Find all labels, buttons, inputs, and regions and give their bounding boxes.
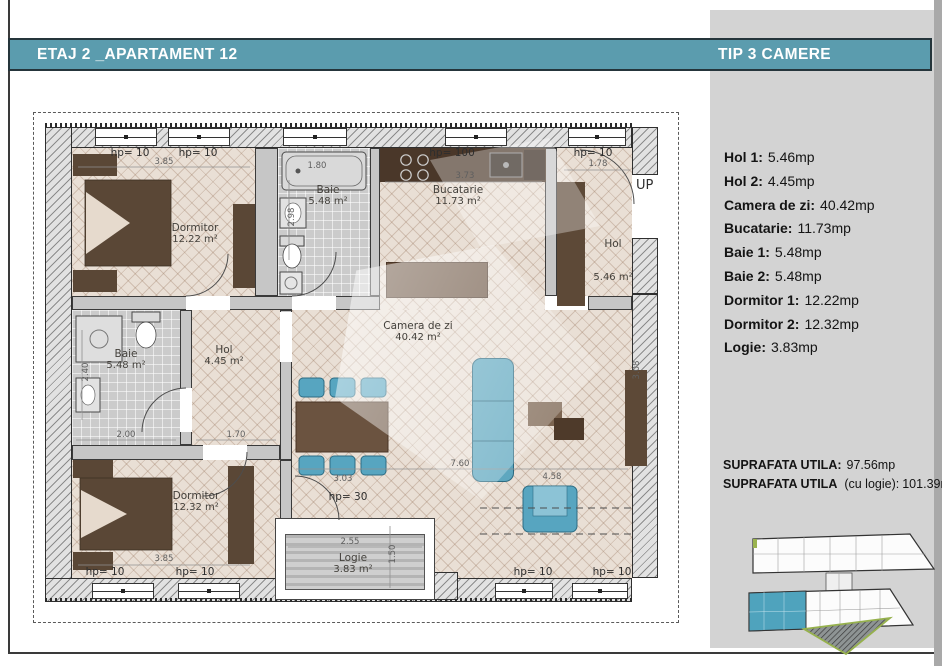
kitchen-fridge [524, 150, 545, 180]
wall-left [45, 127, 72, 582]
dim-label: 2.98 [287, 208, 297, 227]
room-label-hol1: Hol 5.46 m² [593, 238, 632, 284]
room-name: Baie [106, 348, 145, 360]
legend-item: Baie 1:5.48mp [724, 241, 875, 265]
hp-label: hp= 10 [176, 566, 215, 578]
dim-label: 2.40 [81, 363, 91, 382]
room-name: Camera de zi [383, 320, 452, 332]
room-label-camera: Camera de zi 40.42 m² [383, 320, 452, 344]
room-area: 5.48 m² [308, 196, 347, 208]
wall-under-baie2-hol2 [72, 445, 280, 460]
floor-hol2 [192, 310, 280, 445]
total-useful-area-with-loggia: SUPRAFATA UTILA(cu logie):101.39mp [723, 475, 942, 494]
dim-label: 4.58 [543, 472, 562, 482]
hp-label: hp= 10 [574, 147, 613, 159]
hp-label: hp= 10 [179, 147, 218, 159]
room-name: Bucatarie [433, 184, 483, 196]
room-label-logie: Logie 3.83 m² [333, 552, 372, 576]
legend-item: Camera de zi:40.42mp [724, 194, 875, 218]
hp-label: hp= 10 [111, 147, 150, 159]
dim-label: 1.70 [227, 430, 246, 440]
media-wall-unit [625, 370, 647, 466]
window-dorm2-b [178, 583, 240, 599]
tv-stand-b [554, 418, 584, 440]
wall-under-hol1 [588, 296, 632, 310]
room-area: 40.42 m² [383, 332, 452, 344]
wall-dorm1-baie1 [255, 148, 278, 296]
page-edge-strip [934, 0, 942, 666]
dim-label: 2.00 [117, 430, 136, 440]
window-camera-a [495, 583, 553, 599]
dim-label: 3.85 [155, 554, 174, 564]
room-label-baie2: Baie 5.48 m² [106, 348, 145, 372]
total-useful-area: SUPRAFATA UTILA:97.56mp [723, 456, 942, 475]
dim-label: 3.08 [632, 361, 642, 380]
apartment-type-title: TIP 3 CAMERE [718, 40, 831, 69]
dim-label: 1.78 [589, 159, 608, 169]
legend-item: Bucatarie:11.73mp [724, 217, 875, 241]
hol1-cabinet [557, 182, 585, 306]
room-area: 12.22 m² [172, 234, 219, 246]
dim-label: 1.80 [308, 161, 327, 171]
legend-item: Logie:3.83mp [724, 336, 875, 360]
room-name: Logie [333, 552, 372, 564]
room-legend: Hol 1:5.46mp Hol 2:4.45mp Camera de zi:4… [724, 146, 875, 360]
legend-item: Dormitor 1:12.22mp [724, 289, 875, 313]
room-area: 5.46 m² [593, 272, 632, 284]
window-hol1 [568, 128, 626, 146]
drawing-sheet: ETAJ 2 _APARTAMENT 12 TIP 3 CAMERE [0, 0, 942, 666]
hp-label: hp= 100 [429, 147, 475, 159]
wall-right-top [632, 127, 658, 175]
window-bucatarie [445, 128, 507, 146]
window-camera-b [572, 583, 628, 599]
window-dorm1-a [95, 128, 157, 146]
key-plan [740, 532, 935, 659]
room-area: 3.83 m² [333, 564, 372, 576]
room-area: 12.32 m² [173, 502, 220, 514]
room-area: 4.45 m² [204, 356, 243, 368]
opening-hol2-camera [280, 312, 292, 362]
hp-label: hp= 10 [514, 566, 553, 578]
window-dorm2-a [92, 583, 154, 599]
dim-label: 3.73 [456, 171, 475, 181]
legend-item: Dormitor 2:12.32mp [724, 313, 875, 337]
stairs-up-label: UP [636, 178, 653, 193]
floor-plan: hp= 10 hp= 10 hp= 100 hp= 10 hp= 30 hp= … [40, 120, 665, 612]
dim-label: 1.50 [388, 545, 398, 564]
page-border-left [8, 0, 10, 654]
room-label-bucatarie: Bucatarie 11.73 m² [433, 184, 483, 208]
dim-label: 3.03 [334, 474, 353, 484]
legend-item: Hol 2:4.45mp [724, 170, 875, 194]
door-opening-dormitor1 [186, 296, 230, 310]
room-name: Dormitor [172, 222, 219, 234]
room-label-hol2: Hol 4.45 m² [204, 344, 243, 368]
door-opening-dormitor2 [203, 445, 247, 460]
window-dorm1-b [168, 128, 230, 146]
room-name: Hol [204, 344, 243, 356]
title-bar: ETAJ 2 _APARTAMENT 12 TIP 3 CAMERE [8, 38, 932, 71]
window-baie1 [283, 128, 347, 146]
sheet-title: ETAJ 2 _APARTAMENT 12 [37, 40, 237, 69]
legend-item: Baie 2:5.48mp [724, 265, 875, 289]
sofa [472, 358, 514, 482]
room-label-baie1: Baie 5.48 m² [308, 184, 347, 208]
hp-label: hp= 30 [329, 491, 368, 503]
floor-dormitor1 [72, 148, 255, 296]
dim-label: 3.85 [155, 157, 174, 167]
hp-label: hp= 10 [86, 566, 125, 578]
wall-bucatarie-hol1 [545, 148, 557, 296]
wall-right-mid [632, 238, 658, 294]
door-opening-baie1 [292, 296, 336, 310]
room-area: 5.48 m² [106, 360, 145, 372]
hp-label: hp= 10 [593, 566, 632, 578]
room-area: 11.73 m² [433, 196, 483, 208]
area-totals: SUPRAFATA UTILA:97.56mp SUPRAFATA UTILA(… [723, 456, 942, 493]
floor-dormitor2 [72, 460, 280, 580]
legend-item: Hol 1:5.46mp [724, 146, 875, 170]
room-label-dormitor2: Dormitor 12.32 m² [173, 490, 220, 514]
room-name: Baie [308, 184, 347, 196]
dim-label: 2.55 [341, 537, 360, 547]
room-label-dormitor1: Dormitor 12.22 m² [172, 222, 219, 246]
room-name: Hol [593, 238, 632, 250]
kitchen-island [386, 262, 488, 298]
door-opening-baie2 [180, 388, 192, 432]
dim-label: 7.60 [451, 459, 470, 469]
wall-baie1-bucatarie [370, 148, 380, 296]
room-name: Dormitor [173, 490, 220, 502]
